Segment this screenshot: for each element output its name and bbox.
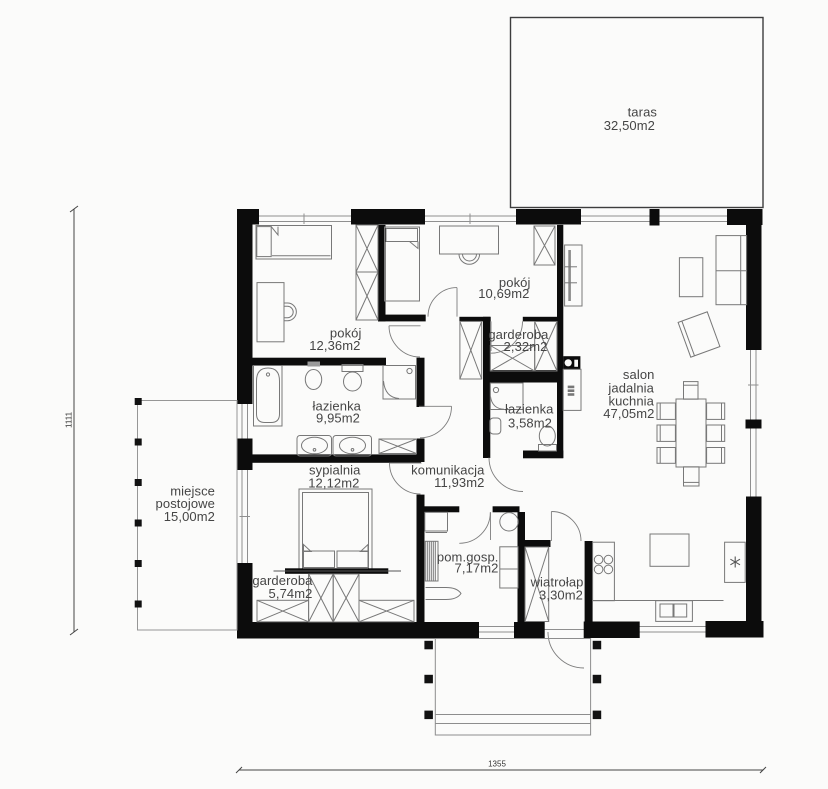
svg-text:10,69m2: 10,69m2 bbox=[478, 286, 529, 301]
svg-text:11,93m2: 11,93m2 bbox=[434, 475, 484, 490]
svg-text:3,30m2: 3,30m2 bbox=[539, 588, 583, 603]
svg-text:2,32m2: 2,32m2 bbox=[504, 339, 548, 354]
svg-text:3,58m2: 3,58m2 bbox=[508, 415, 552, 430]
svg-text:32,50m2: 32,50m2 bbox=[604, 118, 655, 133]
svg-text:9,95m2: 9,95m2 bbox=[316, 411, 360, 426]
svg-text:5,74m2: 5,74m2 bbox=[269, 586, 313, 601]
svg-text:47,05m2: 47,05m2 bbox=[603, 406, 654, 421]
svg-text:1355: 1355 bbox=[488, 760, 506, 769]
svg-text:15,00m2: 15,00m2 bbox=[164, 509, 215, 524]
svg-text:1111: 1111 bbox=[65, 411, 74, 428]
svg-text:12,36m2: 12,36m2 bbox=[309, 338, 360, 353]
svg-text:12,12m2: 12,12m2 bbox=[308, 476, 359, 491]
svg-text:7,17m2: 7,17m2 bbox=[455, 561, 499, 576]
